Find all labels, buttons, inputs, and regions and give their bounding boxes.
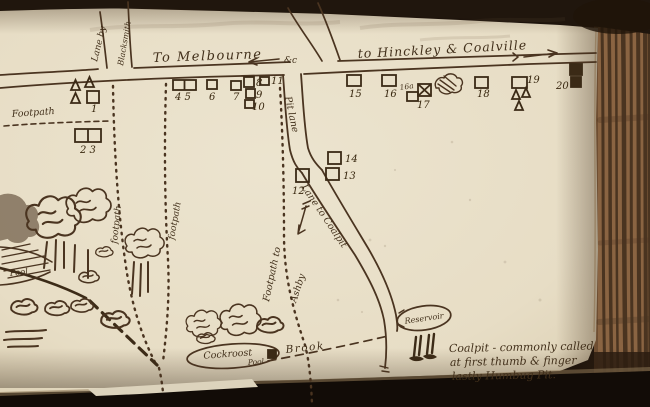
house-number-2-3: 2 3: [79, 145, 96, 156]
house-number-18: 18: [477, 89, 490, 100]
house-number-12: 12: [292, 186, 305, 197]
notebook-photo: To Melbourne &c to Hinckley & Coalville …: [0, 0, 650, 407]
house-number-17: 17: [417, 100, 430, 111]
house-number-10: 10: [252, 102, 265, 113]
note-line-2: at first thumb & finger: [450, 354, 578, 369]
label-cockroost-pool: Pool: [247, 357, 265, 367]
house-number-4-5: 4 5: [174, 92, 191, 103]
house-number-13: 13: [343, 171, 356, 182]
house-20b: [571, 77, 581, 87]
house-number-16: 16: [384, 89, 397, 100]
house-number-20: 20: [555, 81, 569, 92]
house-number-7: 7: [233, 92, 240, 103]
map-sketch-svg: To Melbourne &c to Hinckley & Coalville …: [0, 0, 650, 407]
house-number-14: 14: [345, 154, 358, 165]
label-pool: Pool: [8, 267, 29, 279]
note-line-1: Coalpit - commonly called: [449, 339, 594, 355]
house-number-6: 6: [209, 92, 216, 103]
label-etc-mark: &c: [284, 56, 297, 66]
house-number-1: 1: [91, 104, 97, 115]
house-number-11: 11: [271, 76, 284, 87]
house-number-9: 9: [256, 90, 263, 101]
note-line-3: lastly Humbug Pit.: [452, 368, 556, 383]
house-20: [570, 64, 582, 75]
house-number-19: 19: [527, 75, 540, 86]
house-number-15: 15: [349, 89, 362, 100]
